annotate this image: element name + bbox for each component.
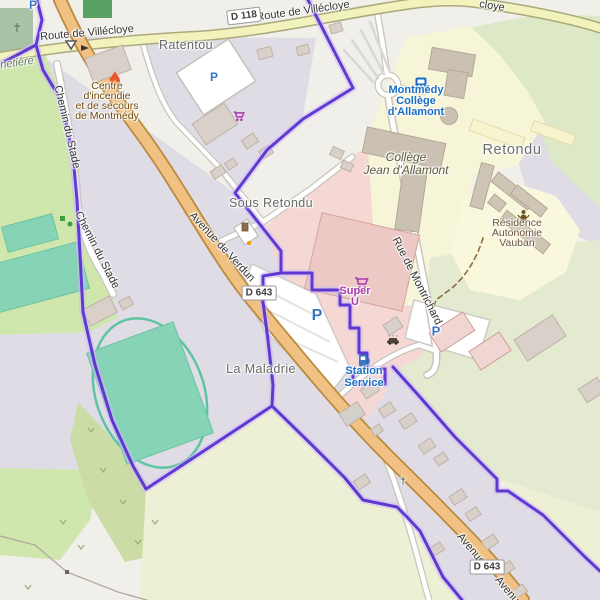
map-geometry (0, 0, 600, 600)
gate-icon (65, 570, 69, 574)
poi-dot-icon (247, 241, 251, 245)
map-canvas[interactable]: P P P P Route de Villécloye Route de Vil… (0, 0, 600, 600)
vending-machine-icon (242, 223, 248, 231)
